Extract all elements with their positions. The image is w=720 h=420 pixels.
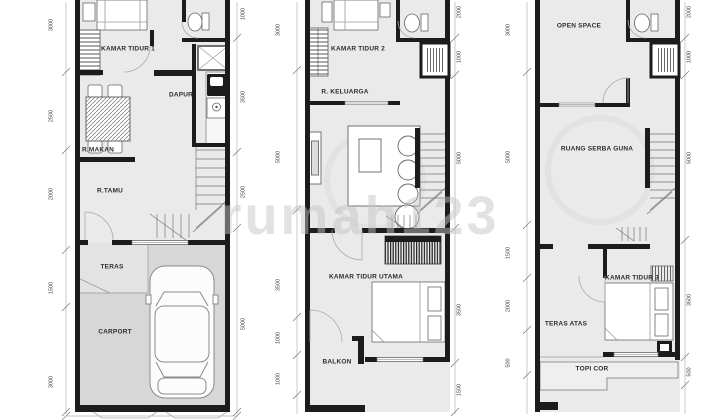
floorplan-sheet: rumah123 KAMAR TIDUR 1 DAPUR R.MAKAN R.T…: [0, 0, 720, 420]
dimension-label: 1000: [241, 8, 247, 20]
dimension-label: 5000: [241, 318, 247, 330]
dimension-label: 3000: [276, 24, 282, 36]
dimension-label: 3500: [276, 279, 282, 291]
bed-icon: [605, 283, 673, 340]
room-label-teras: TERAS: [100, 264, 123, 271]
toilet-icon: [188, 13, 209, 31]
dimension-label: 3500: [457, 304, 463, 316]
wardrobe-icon: [308, 28, 328, 76]
shaft-hatch: [656, 48, 674, 72]
dimension-label: 1000: [687, 51, 693, 63]
wardrobe-icon: [79, 30, 100, 75]
dimension-label: 3000: [49, 19, 55, 31]
room-label-ruang-serba-guna: RUANG SERBA GUNA: [561, 146, 633, 153]
bed-utama-icon: [372, 282, 445, 342]
toilet-icon: [405, 14, 429, 32]
dimension-label: 1000: [276, 373, 282, 385]
dimension-label: 2000: [49, 188, 55, 200]
plan-lantai-3: [523, 0, 689, 414]
watermark-text: rumah123: [220, 185, 499, 247]
dimension-label: 500: [506, 358, 512, 367]
dimension-label: 5000: [457, 152, 463, 164]
dimension-label: 1500: [457, 384, 463, 396]
gate-marks: [93, 412, 227, 418]
dimension-label: 1000: [457, 51, 463, 63]
room-label-kamar-tidur-utama: KAMAR TIDUR UTAMA: [329, 274, 403, 281]
dimension-label: 3000: [49, 376, 55, 388]
dimension-label: 1500: [506, 247, 512, 259]
dimension-label: 2000: [457, 6, 463, 18]
room-label-r-keluarga: R. KELUARGA: [321, 89, 368, 96]
room-label-kamar-tidur-2: KAMAR TIDUR 2: [331, 46, 385, 53]
room-label-r-makan: R.MAKAN: [82, 147, 114, 154]
room-label-teras-atas: TERAS ATAS: [545, 321, 587, 328]
plan1-window: [132, 241, 188, 245]
shaft-hatch: [426, 48, 444, 72]
car-icon: [146, 266, 218, 398]
room-label-carport: CARPORT: [98, 329, 132, 336]
toilet-icon: [635, 14, 659, 32]
room-label-open-space: OPEN SPACE: [557, 23, 601, 30]
dimension-label: 2500: [49, 110, 55, 122]
dimension-label: 2000: [506, 300, 512, 312]
room-label-kamar-tidur-1: KAMAR TIDUR 1: [101, 46, 155, 53]
dimension-label: 5000: [276, 151, 282, 163]
dimension-label: 1000: [276, 332, 282, 344]
room-label-r-tamu: R.TAMU: [97, 188, 123, 195]
dimension-label: 3000: [506, 24, 512, 36]
shaft-icon: [198, 46, 228, 70]
room-label-dapur: DAPUR: [169, 92, 193, 99]
dimension-label: 5000: [506, 151, 512, 163]
dimension-label: 2000: [687, 6, 693, 18]
room-label-topi-cor: TOPI COR: [576, 366, 609, 373]
dimension-label: 3500: [241, 91, 247, 103]
kitchen-counter-icon: [206, 72, 228, 144]
room-label-balkon: BALKON: [322, 359, 351, 366]
dimension-label: 3500: [687, 294, 693, 306]
dimension-label: 5000: [687, 152, 693, 164]
dimension-label: 500: [687, 367, 693, 376]
room-label-kamar-tidur-3: KAMAR TIDUR 3: [605, 275, 659, 282]
dimension-label: 1500: [49, 282, 55, 294]
plan-lantai-1: [62, 0, 241, 420]
dimension-label: 2500: [241, 186, 247, 198]
